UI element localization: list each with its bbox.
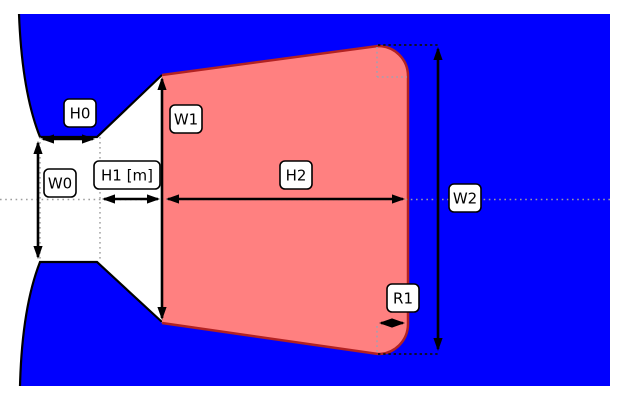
dimension-label-text: W2 <box>453 189 477 207</box>
dimension-label-text: H2 <box>286 166 307 184</box>
dimension-label-text: R1 <box>393 289 413 307</box>
dimension-label-text: H0 <box>70 104 91 122</box>
diagram-canvas: H0W0H1 [m]W1H2W2R1 <box>0 0 623 400</box>
dimension-label-text: W0 <box>48 174 72 192</box>
nozzle-geometry-figure: H0W0H1 [m]W1H2W2R1 <box>0 0 623 400</box>
dimension-label-text: W1 <box>174 110 198 128</box>
dimension-label-text: H1 [m] <box>101 166 153 184</box>
